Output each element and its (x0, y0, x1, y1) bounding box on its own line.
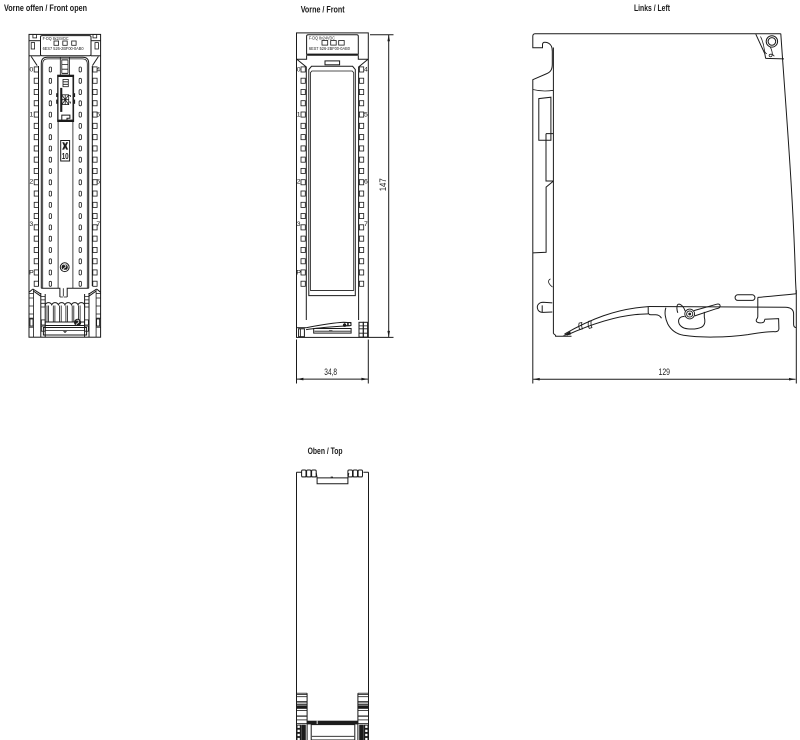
svg-text:4: 4 (364, 67, 368, 74)
svg-text:7: 7 (364, 221, 368, 228)
svg-text:P: P (296, 270, 301, 277)
svg-text:Links / Left: Links / Left (634, 3, 671, 14)
svg-text:34,8: 34,8 (324, 367, 337, 377)
svg-text:Vorne / Front: Vorne / Front (301, 4, 346, 15)
svg-text:6ES7 526-2BF00-0AB0: 6ES7 526-2BF00-0AB0 (43, 46, 85, 51)
svg-text:7: 7 (96, 221, 100, 228)
svg-text:Vorne offen / Front open: Vorne offen / Front open (4, 3, 87, 14)
svg-text:147: 147 (378, 178, 388, 191)
svg-text:3: 3 (297, 221, 301, 228)
svg-text:2: 2 (297, 178, 301, 185)
svg-text:F-DQ 8x24VDC: F-DQ 8x24VDC (43, 36, 69, 41)
svg-text:5: 5 (364, 112, 368, 119)
svg-text:F-DQ 8x24VDC: F-DQ 8x24VDC (309, 36, 335, 41)
svg-text:6: 6 (96, 178, 100, 185)
svg-text:2: 2 (30, 178, 34, 185)
svg-text:4: 4 (96, 67, 100, 74)
svg-text:P: P (29, 270, 34, 277)
svg-text:1: 1 (297, 112, 301, 119)
svg-text:6ES7 526-2BF00-0AB0: 6ES7 526-2BF00-0AB0 (309, 46, 351, 51)
svg-text:Oben / Top: Oben / Top (308, 446, 343, 457)
svg-text:129: 129 (659, 367, 671, 377)
svg-text:3: 3 (30, 221, 34, 228)
svg-text:0: 0 (30, 67, 34, 74)
svg-text:5: 5 (96, 112, 100, 119)
svg-text:10: 10 (62, 152, 69, 161)
svg-text:6: 6 (364, 178, 368, 185)
svg-text:1: 1 (30, 112, 34, 119)
svg-text:0: 0 (297, 67, 301, 74)
